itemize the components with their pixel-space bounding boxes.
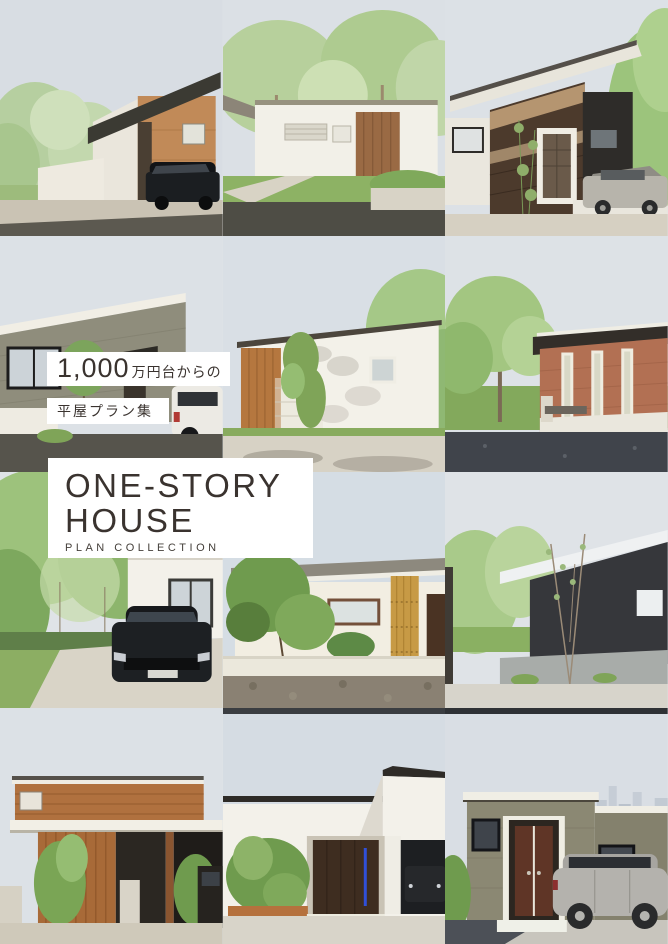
house-photo-10 <box>0 708 223 944</box>
grass <box>37 429 73 443</box>
shrub <box>327 632 375 660</box>
house-render-12-illustration <box>445 708 668 944</box>
house-render-2-illustration <box>223 0 446 236</box>
title-line-2: HOUSE <box>65 503 313 538</box>
house-photo-5 <box>223 236 446 472</box>
paving <box>0 923 223 944</box>
house-render-9-illustration <box>445 472 668 708</box>
house-photo-12 <box>445 708 668 944</box>
ground <box>445 684 668 708</box>
top-strip <box>445 708 668 714</box>
house-photo-3 <box>445 0 668 236</box>
garage-car <box>404 866 445 902</box>
price-amount: 1,000 <box>57 352 130 385</box>
planter <box>370 188 445 210</box>
house-photo-6 <box>445 236 668 472</box>
price-suffix: 万円台からの <box>132 362 222 382</box>
asphalt <box>445 432 668 472</box>
house <box>255 100 438 176</box>
house-render-3-illustration <box>445 0 668 236</box>
house-render-6-illustration <box>445 236 668 472</box>
car <box>198 866 223 928</box>
house-render-11-illustration <box>223 708 446 944</box>
house-render-1-illustration <box>0 0 223 236</box>
top-strip <box>223 708 446 714</box>
pavement <box>223 916 446 944</box>
brochure-cover: 1,000万円台からの 平屋プラン集 ONE-STORY HOUSE PLAN … <box>0 0 668 944</box>
house-render-10-illustration <box>0 708 223 944</box>
house-photo-1 <box>0 0 223 236</box>
house-photo-2 <box>223 0 446 236</box>
house-photo-11 <box>223 708 446 944</box>
subtitle-box: 平屋プラン集 <box>47 398 169 424</box>
concrete-wall <box>0 886 22 924</box>
subtitle-text: 平屋プラン集 <box>57 403 153 419</box>
cobblestone <box>223 676 446 708</box>
white-step <box>497 920 567 932</box>
house-render-5-illustration <box>223 236 446 472</box>
title-subtext: PLAN COLLECTION <box>65 542 313 554</box>
ground <box>445 214 668 236</box>
title-box: ONE-STORY HOUSE PLAN COLLECTION <box>48 458 313 558</box>
edge-strip <box>445 567 453 687</box>
price-box: 1,000万円台からの <box>47 352 230 386</box>
car <box>112 606 212 682</box>
title-line-1: ONE-STORY <box>65 468 313 503</box>
house-photo-9 <box>445 472 668 708</box>
house <box>533 322 668 438</box>
